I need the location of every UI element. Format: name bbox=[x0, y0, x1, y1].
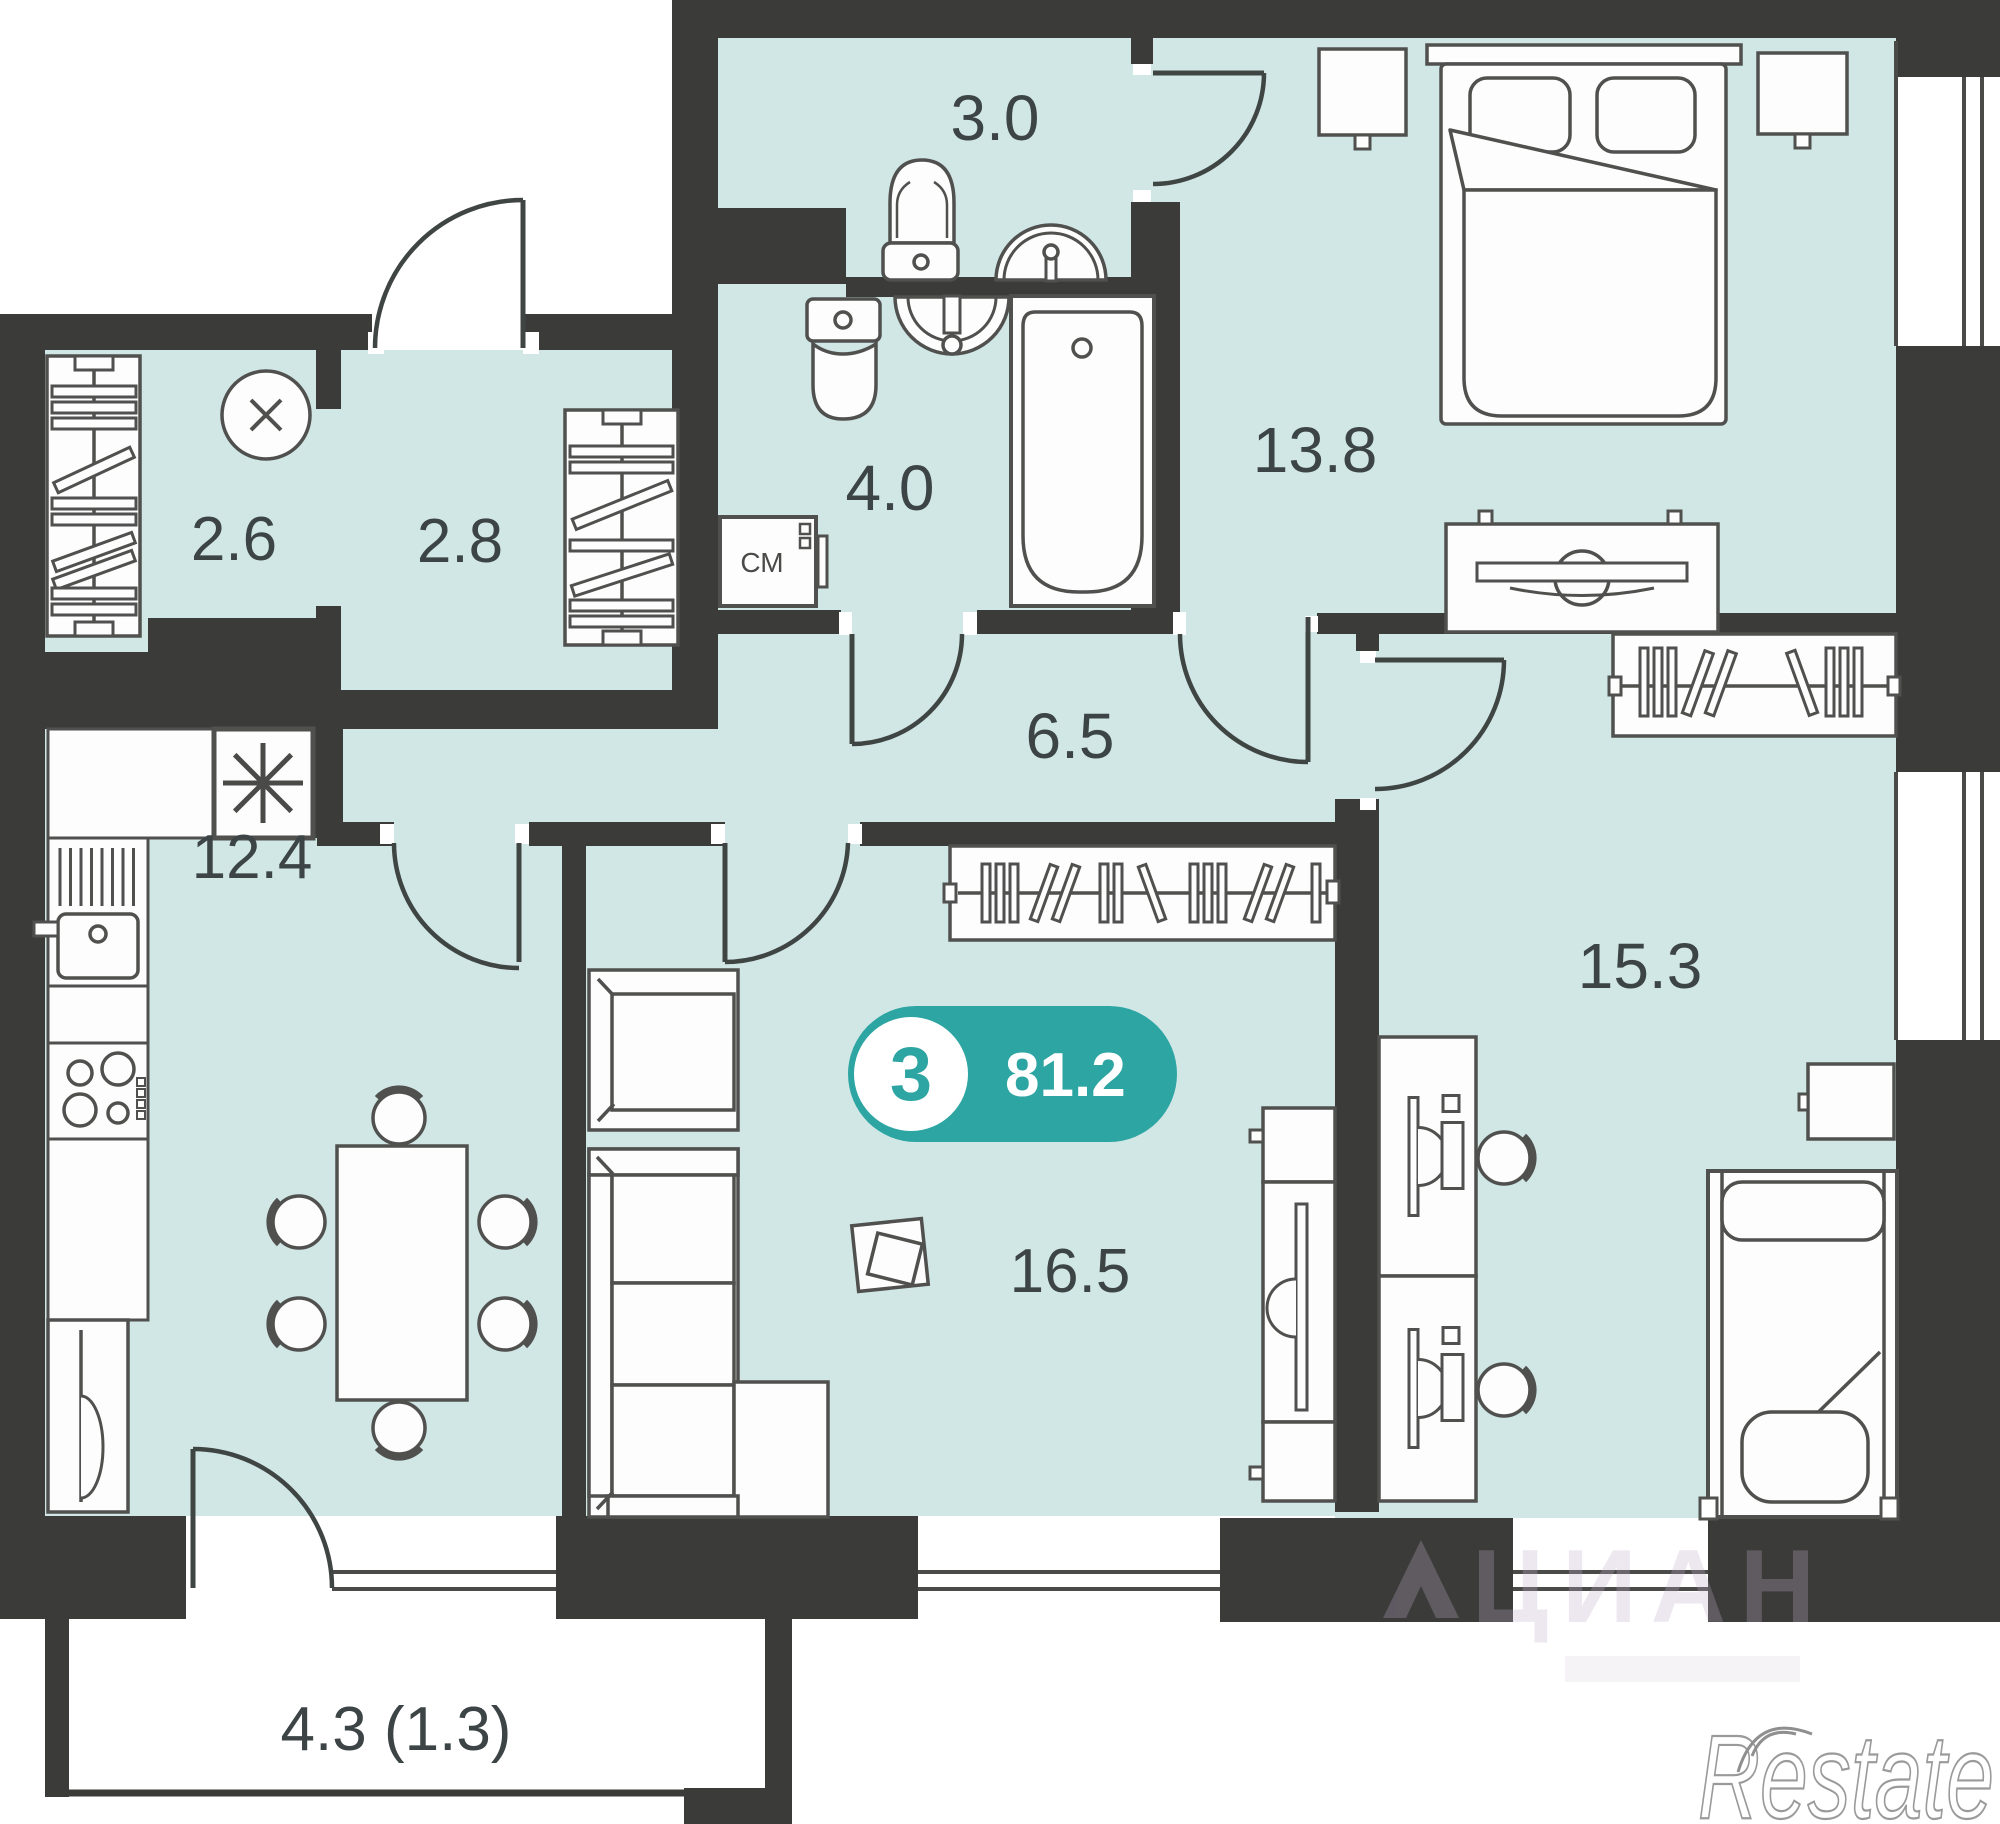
svg-text:4.3 (1.3): 4.3 (1.3) bbox=[281, 1695, 512, 1764]
svg-text:Restate: Restate bbox=[1698, 1710, 1994, 1824]
svg-text:2.8: 2.8 bbox=[417, 507, 503, 576]
svg-text:15.3: 15.3 bbox=[1578, 930, 1703, 1002]
svg-text:13.8: 13.8 bbox=[1253, 414, 1378, 486]
svg-text:СМ: СМ bbox=[740, 547, 783, 578]
svg-text:81.2: 81.2 bbox=[1005, 1041, 1126, 1110]
svg-text:3.0: 3.0 bbox=[951, 82, 1040, 154]
svg-text:3: 3 bbox=[890, 1032, 932, 1117]
svg-text:6.5: 6.5 bbox=[1026, 700, 1115, 772]
svg-text:4.0: 4.0 bbox=[846, 452, 935, 524]
svg-text:2.6: 2.6 bbox=[191, 505, 277, 574]
svg-text:ЦИАН: ЦИАН bbox=[1472, 1529, 1829, 1645]
svg-text:12.4: 12.4 bbox=[192, 823, 313, 892]
svg-text:16.5: 16.5 bbox=[1010, 1237, 1131, 1306]
